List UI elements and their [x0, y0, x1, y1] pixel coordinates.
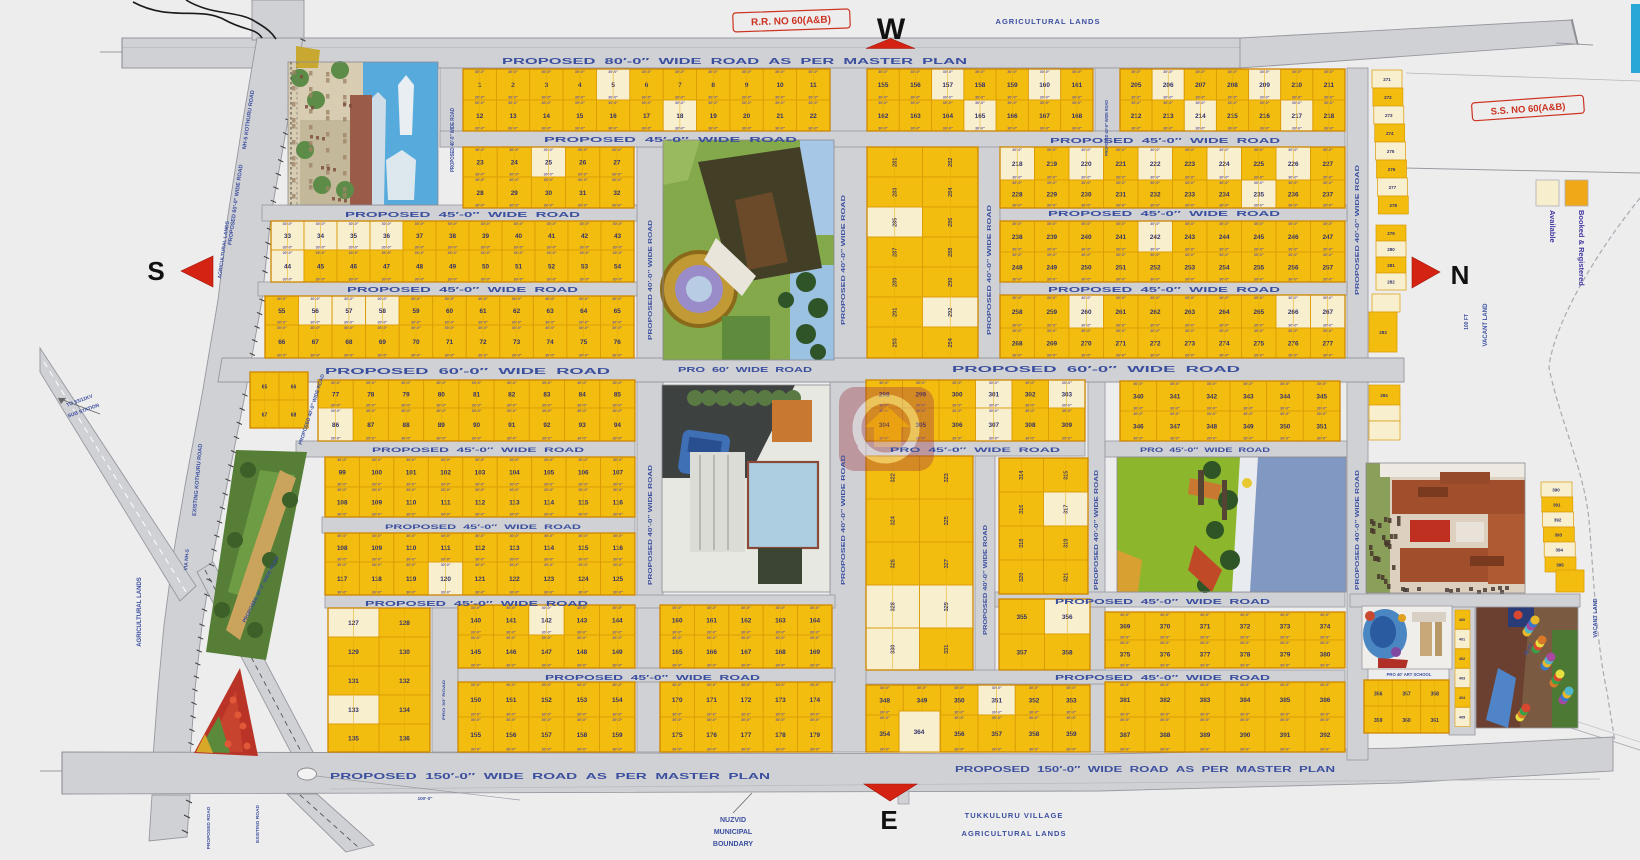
svg-text:PROPOSED 45′-0″ WIDE ROAD: PROPOSED 45′-0″ WIDE ROAD — [1048, 211, 1280, 218]
svg-text:PROPOSED 40′-0″ WIDE ROAD: PROPOSED 40′-0″ WIDE ROAD — [1355, 470, 1361, 590]
svg-text:AGRICULTURAL LANDS: AGRICULTURAL LANDS — [137, 577, 143, 647]
svg-text:PROPOSED 45′-0″ WIDE ROAD: PROPOSED 45′-0″ WIDE ROAD — [385, 524, 582, 531]
svg-text:PROPOSED 45′-0″ WIDE ROAD: PROPOSED 45′-0″ WIDE ROAD — [347, 287, 578, 294]
svg-text:PROPOSED ROAD: PROPOSED ROAD — [206, 806, 212, 849]
svg-text:PROPOSED 40′-0″ WIDE ROAD: PROPOSED 40′-0″ WIDE ROAD — [983, 525, 989, 635]
svg-text:286: 286 — [948, 218, 954, 227]
svg-text:317: 317 — [1064, 505, 1070, 514]
svg-text:293: 293 — [893, 338, 899, 347]
svg-text:282: 282 — [948, 158, 954, 167]
svg-text:284: 284 — [948, 187, 954, 197]
svg-text:PROPOSED 40′-0″ WIDE ROAD: PROPOSED 40′-0″ WIDE ROAD — [450, 108, 456, 172]
svg-text:393: 393 — [1555, 533, 1563, 538]
svg-text:271: 271 — [1383, 77, 1391, 82]
svg-text:292: 292 — [948, 308, 954, 317]
svg-text:315: 315 — [1064, 471, 1070, 480]
svg-text:325: 325 — [944, 516, 950, 525]
svg-text:391: 391 — [1553, 503, 1561, 508]
svg-text:320: 320 — [1019, 573, 1025, 582]
svg-text:PROPOSED 40′-0″ WIDE ROAD: PROPOSED 40′-0″ WIDE ROAD — [648, 465, 654, 585]
svg-text:PROPOSED 45′-0″ WIDE ROAD: PROPOSED 45′-0″ WIDE ROAD — [1055, 599, 1270, 606]
svg-text:S: S — [147, 256, 164, 286]
svg-text:294: 294 — [948, 337, 954, 347]
svg-text:VACANT LAND: VACANT LAND — [1483, 303, 1489, 347]
svg-text:PROPOSED 45′-0″ WIDE ROAD: PROPOSED 45′-0″ WIDE ROAD — [345, 212, 580, 219]
svg-text:318: 318 — [1019, 539, 1025, 548]
svg-text:PROPOSED 45′-0″ WIDE ROAD: PROPOSED 45′-0″ WIDE ROAD — [365, 601, 588, 608]
svg-text:364: 364 — [914, 729, 925, 736]
svg-text:VACANT LAND: VACANT LAND — [1593, 598, 1599, 637]
svg-text:390: 390 — [1552, 488, 1560, 493]
svg-text:322: 322 — [891, 473, 897, 482]
svg-text:278: 278 — [1390, 203, 1398, 208]
svg-text:284: 284 — [1380, 393, 1388, 398]
svg-text:323: 323 — [944, 473, 950, 482]
svg-text:PRO 45′-0″ WIDE ROAD: PRO 45′-0″ WIDE ROAD — [890, 447, 1061, 454]
svg-text:PROPOSED 40′-0″ WIDE ROAD: PROPOSED 40′-0″ WIDE ROAD — [841, 195, 847, 325]
svg-text:394: 394 — [1555, 548, 1563, 553]
svg-text:PROPOSED 40′-0″ WIDE ROAD: PROPOSED 40′-0″ WIDE ROAD — [1104, 99, 1109, 156]
svg-text:AGRICULTURAL LANDS: AGRICULTURAL LANDS — [962, 829, 1067, 838]
svg-text:288: 288 — [948, 248, 954, 257]
svg-text:314: 314 — [1019, 470, 1025, 480]
svg-text:330: 330 — [891, 645, 897, 654]
svg-text:280: 280 — [1387, 247, 1395, 252]
svg-text:282: 282 — [1387, 280, 1395, 285]
svg-text:395: 395 — [1556, 563, 1564, 568]
svg-text:PROPOSED 40′-0″ WIDE ROAD: PROPOSED 40′-0″ WIDE ROAD — [841, 455, 847, 585]
svg-text:PROPOSED 45′-0″ WIDE ROAD: PROPOSED 45′-0″ WIDE ROAD — [1050, 138, 1280, 145]
svg-text:404: 404 — [1459, 696, 1466, 700]
svg-text:291: 291 — [893, 308, 899, 317]
svg-text:PROPOSED 45′-0″ WIDE ROAD: PROPOSED 45′-0″ WIDE ROAD — [544, 137, 797, 144]
svg-text:327: 327 — [944, 559, 950, 568]
svg-text:MUNICIPAL: MUNICIPAL — [714, 829, 753, 836]
svg-text:403: 403 — [1459, 677, 1465, 681]
svg-text:329: 329 — [944, 602, 950, 611]
svg-text:400: 400 — [1459, 618, 1465, 622]
svg-text:276: 276 — [1388, 167, 1396, 172]
svg-text:285: 285 — [893, 218, 899, 227]
svg-text:283: 283 — [1379, 330, 1387, 335]
svg-text:290: 290 — [948, 278, 954, 287]
svg-text:PROPOSED 60′-0″ WIDE ROAD: PROPOSED 60′-0″ WIDE ROAD — [952, 365, 1240, 374]
svg-text:AGRICULTURAL LANDS: AGRICULTURAL LANDS — [996, 17, 1101, 26]
svg-text:273: 273 — [1385, 113, 1393, 118]
svg-text:321: 321 — [1064, 573, 1070, 582]
svg-text:Booked & Registered: Booked & Registered — [1577, 210, 1586, 286]
svg-text:PRO 30′ ROAD: PRO 30′ ROAD — [441, 680, 446, 720]
svg-text:281: 281 — [893, 158, 899, 167]
svg-text:326: 326 — [891, 559, 897, 568]
svg-text:401: 401 — [1459, 638, 1465, 642]
svg-text:E: E — [880, 805, 897, 835]
svg-text:PROPOSED 45′-0″ WIDE ROAD: PROPOSED 45′-0″ WIDE ROAD — [545, 675, 760, 682]
svg-text:EXISTING ROAD: EXISTING ROAD — [255, 805, 261, 843]
svg-text:PROPOSED 60′-0″ WIDE ROAD: PROPOSED 60′-0″ WIDE ROAD — [325, 367, 610, 376]
svg-text:316: 316 — [1019, 505, 1025, 514]
svg-text:PROPOSED 80′-0″ WIDE ROAD: PROPOSED 80′-0″ WIDE ROAD AS PER MASTER … — [502, 57, 968, 66]
svg-text:PROPOSED 40′-0″ WIDE ROAD: PROPOSED 40′-0″ WIDE ROAD — [987, 205, 993, 335]
svg-text:PROPOSED 150′-0″ WIDE ROAD: PROPOSED 150′-0″ WIDE ROAD AS PER MASTER… — [955, 765, 1335, 774]
svg-text:279: 279 — [1387, 231, 1395, 236]
svg-text:BOUNDARY: BOUNDARY — [713, 841, 754, 848]
svg-text:274: 274 — [1386, 131, 1394, 136]
svg-text:328: 328 — [891, 602, 897, 611]
svg-text:NUZVID: NUZVID — [720, 817, 746, 824]
svg-text:PROPOSED 45′-0″ WIDE ROAD: PROPOSED 45′-0″ WIDE ROAD — [1048, 287, 1280, 294]
svg-text:331: 331 — [944, 645, 950, 654]
svg-text:287: 287 — [893, 248, 899, 257]
svg-text:N: N — [1451, 260, 1470, 290]
svg-text:PROPOSED 40′-0″ WIDE ROAD: PROPOSED 40′-0″ WIDE ROAD — [1094, 470, 1100, 590]
svg-text:TUKKULURU VILLAGE: TUKKULURU VILLAGE — [965, 811, 1064, 820]
svg-text:392: 392 — [1554, 518, 1562, 523]
svg-text:272: 272 — [1384, 95, 1392, 100]
svg-text:277: 277 — [1389, 185, 1397, 190]
svg-text:PRO 60′ WIDE ROAD: PRO 60′ WIDE ROAD — [678, 367, 812, 374]
svg-text:100 FT: 100 FT — [1464, 314, 1470, 330]
svg-text:PROPOSED 45′-0″ WIDE ROAD: PROPOSED 45′-0″ WIDE ROAD — [1055, 675, 1270, 682]
svg-text:PROPOSED 40′-0″ WIDE ROAD: PROPOSED 40′-0″ WIDE ROAD — [1355, 165, 1361, 295]
svg-text:PRO 40′ ART SCHOOL: PRO 40′ ART SCHOOL — [1387, 672, 1432, 677]
svg-text:PROPOSED 150′-0″ WIDE ROAD: PROPOSED 150′-0″ WIDE ROAD AS PER MASTER… — [330, 771, 770, 781]
svg-text:100′-0″: 100′-0″ — [418, 796, 434, 801]
svg-text:PROPOSED 40′-0″ WIDE ROAD: PROPOSED 40′-0″ WIDE ROAD — [648, 220, 654, 340]
svg-text:289: 289 — [893, 278, 899, 287]
svg-text:281: 281 — [1387, 263, 1395, 268]
svg-text:405: 405 — [1459, 716, 1465, 720]
svg-text:319: 319 — [1064, 539, 1070, 548]
svg-text:Available: Available — [1548, 210, 1557, 243]
svg-text:283: 283 — [893, 188, 899, 197]
svg-text:275: 275 — [1387, 149, 1395, 154]
svg-text:PROPOSED 45′-0″ WIDE ROAD: PROPOSED 45′-0″ WIDE ROAD — [372, 447, 585, 454]
svg-text:PRO 45′-0″ WIDE ROAD: PRO 45′-0″ WIDE ROAD — [1140, 447, 1270, 454]
svg-text:324: 324 — [891, 515, 897, 525]
svg-text:402: 402 — [1459, 657, 1465, 661]
